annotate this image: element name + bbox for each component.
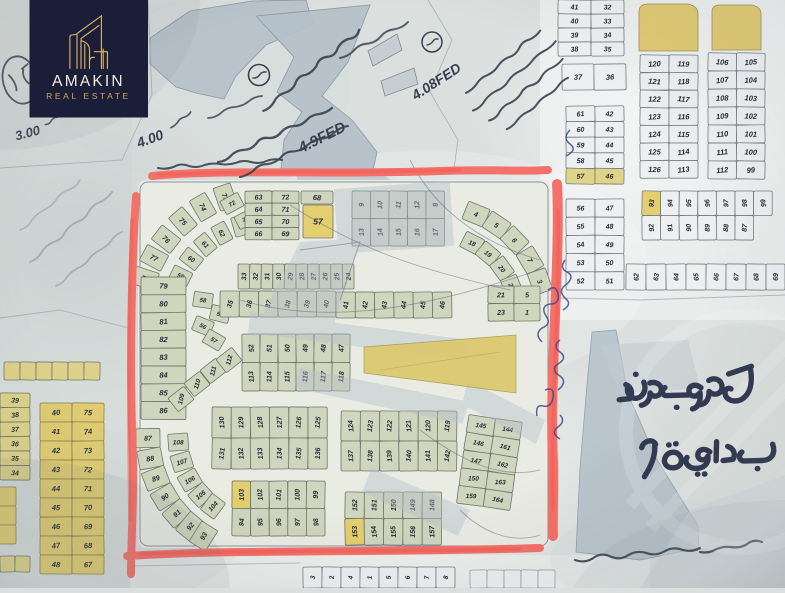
svg-text:REAL ESTATE: REAL ESTATE bbox=[46, 91, 131, 101]
svg-text:AMAKIN: AMAKIN bbox=[52, 73, 125, 90]
